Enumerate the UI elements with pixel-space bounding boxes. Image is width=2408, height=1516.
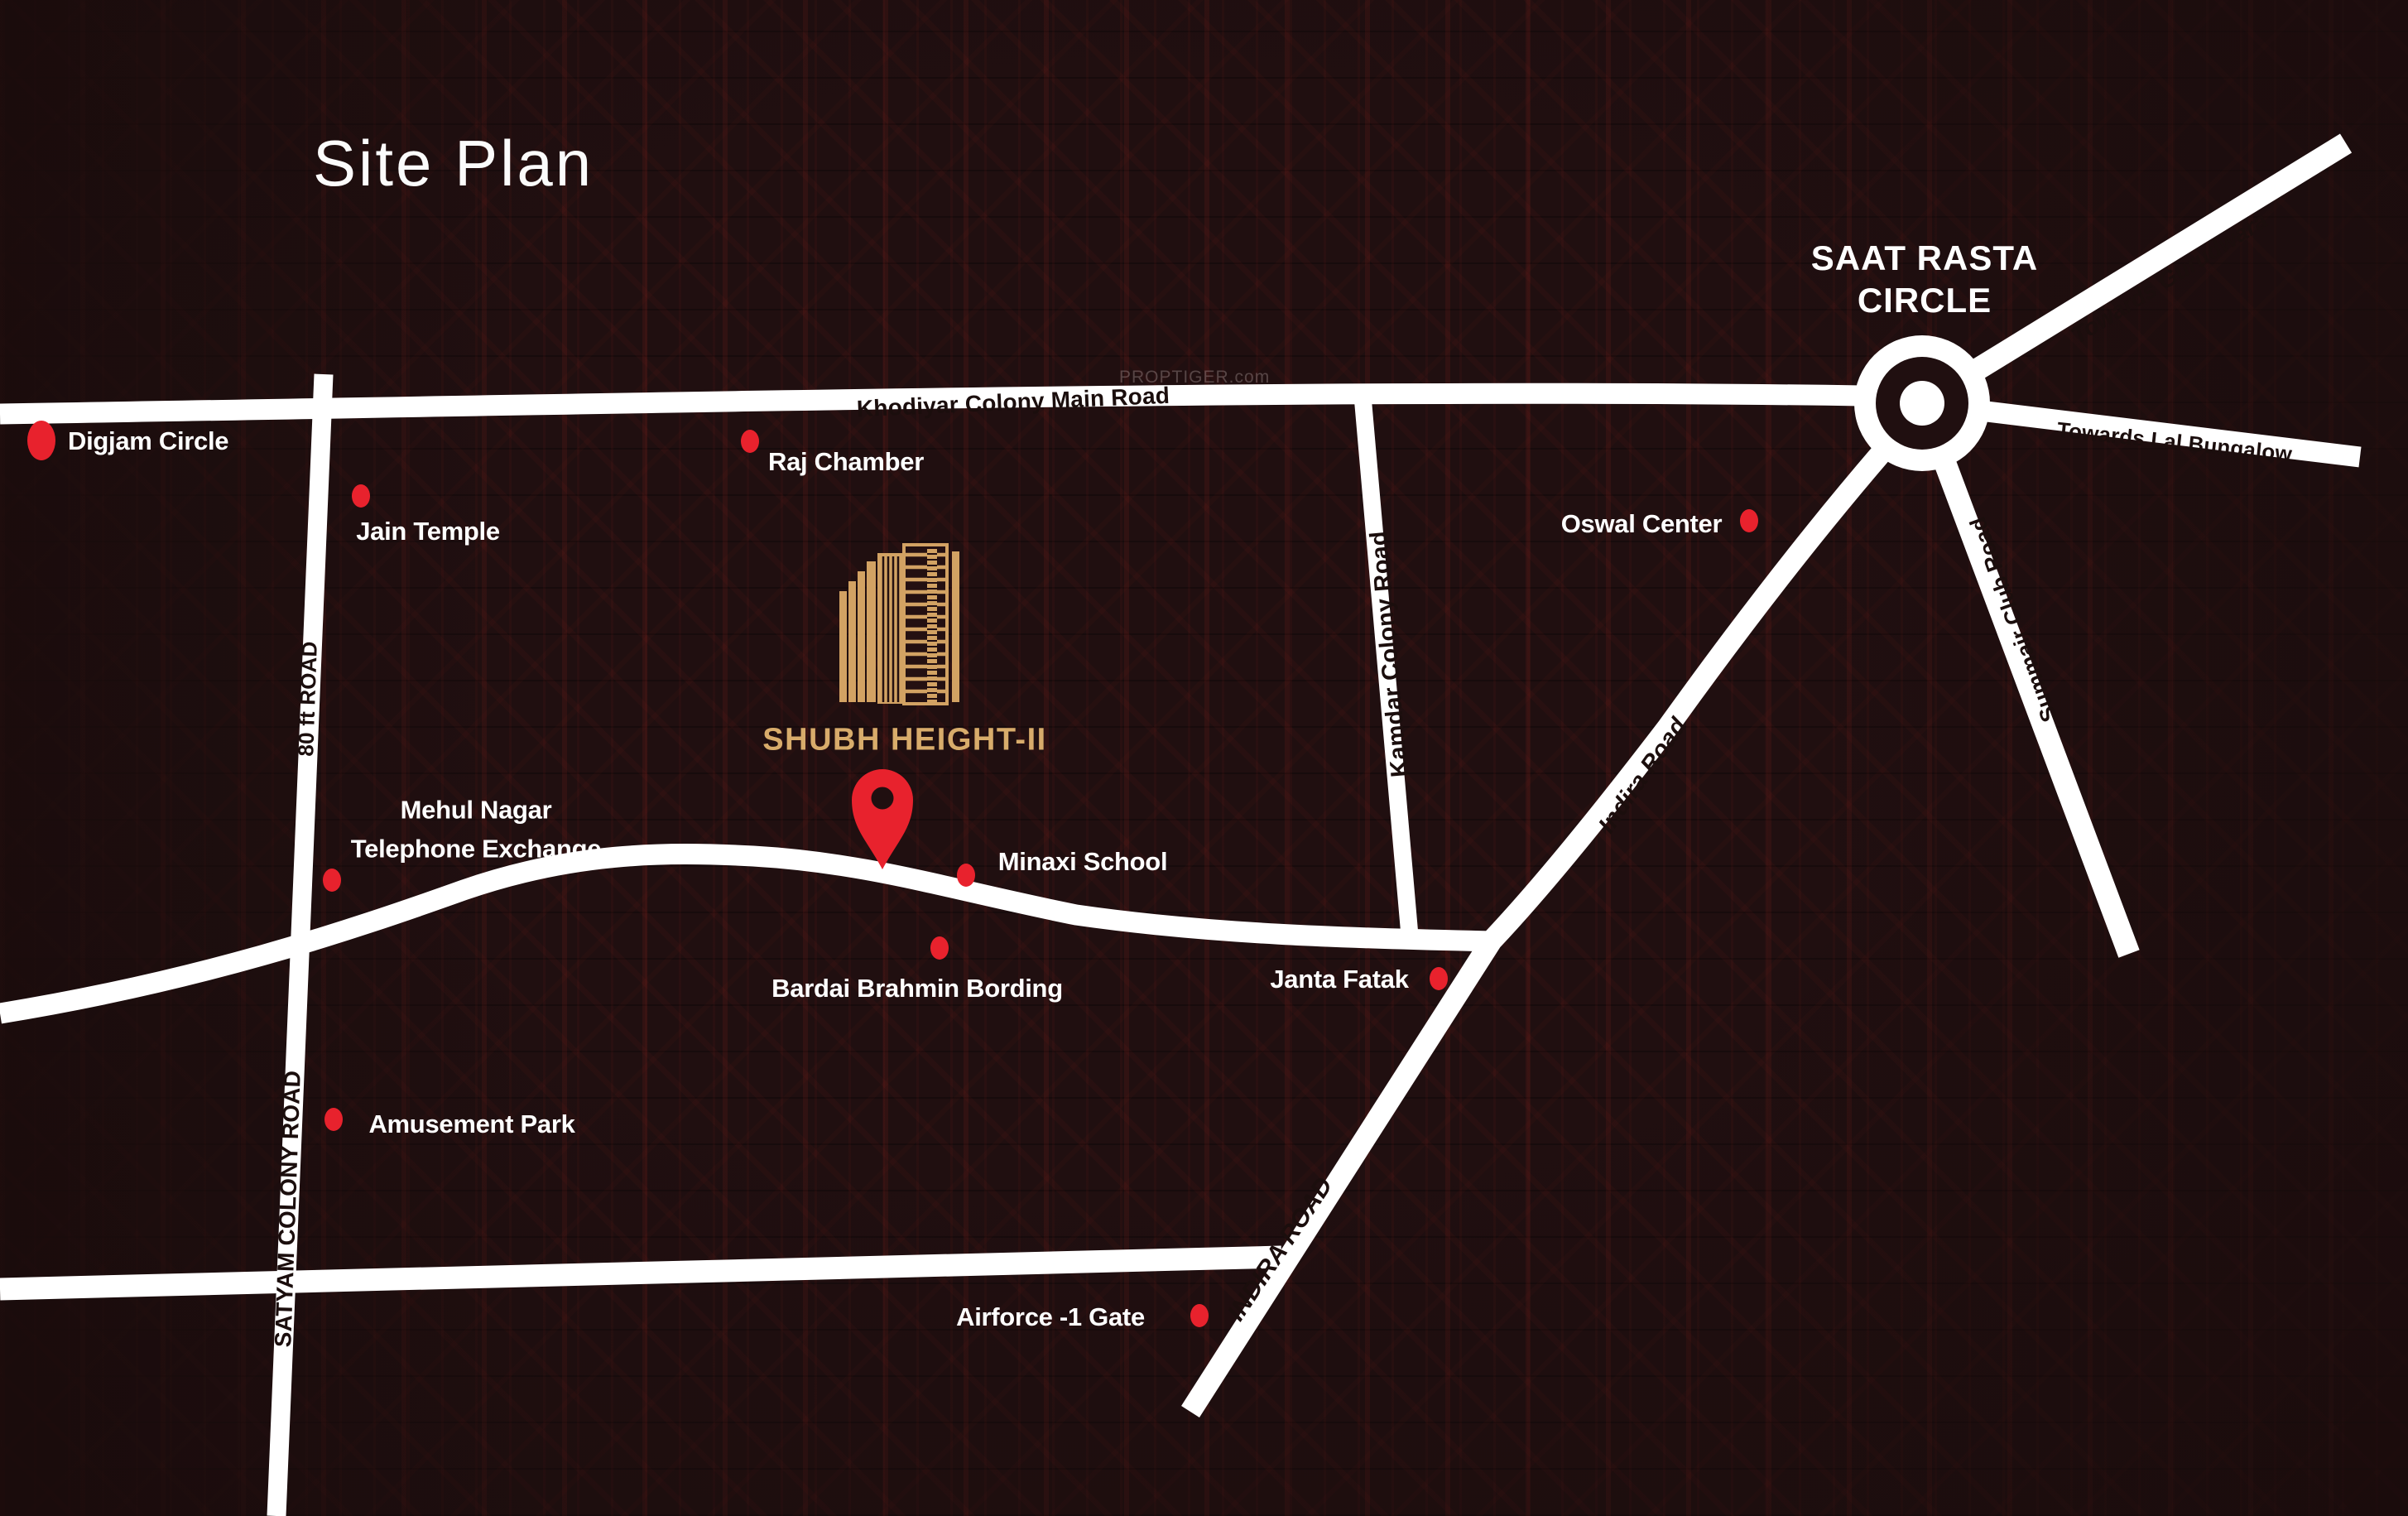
- place-label-jain-temple: Jain Temple: [356, 513, 500, 551]
- site-plan-map: Site Plan PROPTIGER.com SAAT RASTA CIRCL…: [0, 0, 2408, 1516]
- place-label-bardai-brahmin-bording: Bardai Brahmin Bording: [771, 970, 1063, 1008]
- place-label-minaxi-school: Minaxi School: [998, 843, 1168, 882]
- road-label-khodiyar-colony-main-road: Khodiyar Colony Main Road: [856, 383, 1170, 422]
- road-label-satyam-colony-road: SATYAM COLONY ROAD: [270, 1070, 306, 1347]
- road-label-summair-club-road: Summair Club Road: [1965, 513, 2064, 725]
- project-name: SHUBH HEIGHT-II: [762, 723, 1046, 758]
- road-label-indira-road-lower: INDIRA ROAD: [1223, 1172, 1339, 1326]
- place-label-mehul-nagar-telephone-exchange: Mehul Nagar Telephone Exchange: [351, 792, 601, 869]
- labels-layer: Site Plan PROPTIGER.com SAAT RASTA CIRCL…: [0, 0, 2408, 1516]
- road-label-kamdar-colony-road: Kamdar Colony Road: [1366, 530, 1415, 778]
- place-label-oswal-center: Oswal Center: [1561, 505, 1723, 544]
- place-label-amusement-park: Amusement Park: [368, 1105, 574, 1144]
- road-label-eighty-ft-road: 80 ft ROAD: [293, 641, 323, 757]
- junction-name-line2: CIRCLE: [1858, 281, 1992, 320]
- place-label-digjam-circle: Digjam Circle: [68, 422, 228, 461]
- road-label-towards-gurudwara: Towards Gurudwara: [2067, 207, 2273, 349]
- junction-name-line1: SAAT RASTA: [1811, 238, 2038, 277]
- page-title: Site Plan: [313, 126, 594, 201]
- place-label-airforce-1-gate: Airforce -1 Gate: [956, 1298, 1145, 1337]
- place-label-raj-chamber: Raj Chamber: [768, 443, 924, 482]
- road-label-towards-lal-bungalow: Towards Lal Bungalow: [2056, 417, 2294, 468]
- junction-name-saat-rasta-circle: SAAT RASTA CIRCLE: [1811, 237, 2038, 321]
- place-label-janta-fatak: Janta Fatak: [1270, 960, 1408, 999]
- road-label-indira-road-upper: Indira Road: [1593, 713, 1693, 838]
